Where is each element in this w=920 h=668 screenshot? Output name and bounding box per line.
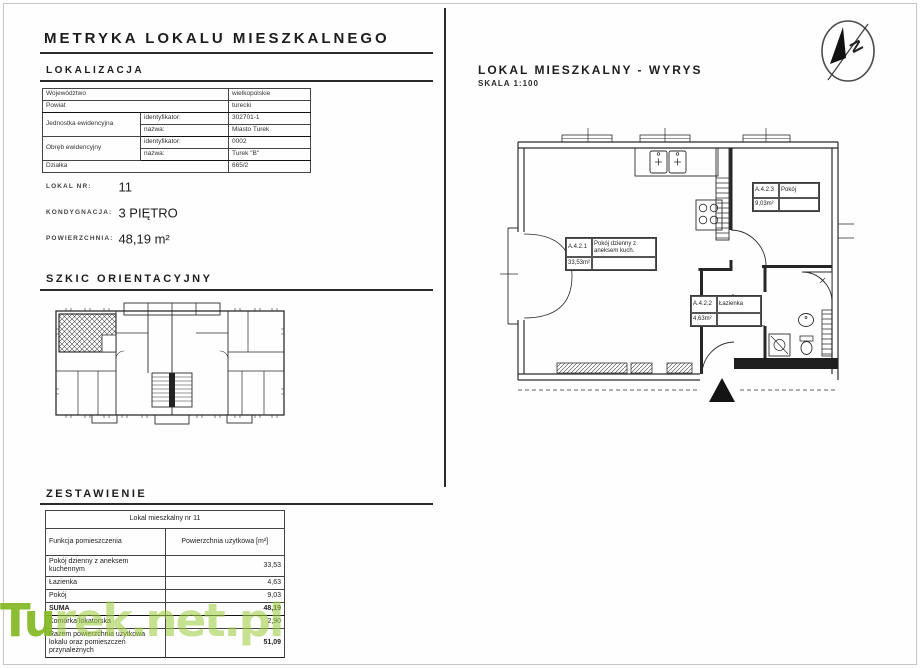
room-area: 4,63m²: [691, 313, 717, 326]
lokalizacja-rule: [40, 80, 433, 82]
table-row: Pokój dzienny z aneksem kuchennym 33,53: [46, 556, 285, 577]
wojewodztwo-value: wielkopolskie: [229, 89, 311, 101]
north-arrow-icon: N: [815, 14, 881, 86]
table-row: Lokal mieszkalny nr 11: [46, 511, 285, 529]
table-row: Obręb ewidencyjny identyfikator: 0002: [43, 137, 311, 149]
room-name: Pokój: [779, 183, 819, 198]
room-id: A.4.2.2: [691, 296, 717, 313]
table-row: Województwo wielkopolskie: [43, 89, 311, 101]
room-label-empty-cell: [779, 198, 819, 211]
jednostka-nazwa: Miasto Turek: [229, 125, 311, 137]
panel-divider: [444, 8, 446, 487]
watermark-bold: Tu: [0, 594, 54, 647]
powierzchnia-row: POWIERZCHNIA: 48,19 m²: [46, 230, 170, 248]
identyfikator-label: identyfikator:: [141, 137, 229, 149]
table-row: Jednostka ewidencyjna identyfikator: 302…: [43, 113, 311, 125]
room-id: A.4.2.1: [566, 238, 592, 257]
room-label-living: A.4.2.1 Pokój dzienny z aneksem kuch. 33…: [565, 237, 657, 271]
nazwa-label: nazwa:: [141, 149, 229, 161]
jednostka-id: 302701-1: [229, 113, 311, 125]
col-funkcja: Funkcja pomieszczenia: [46, 529, 166, 556]
summary-table-title: Lokal mieszkalny nr 11: [46, 511, 285, 529]
table-row: Działka 665/2: [43, 161, 311, 173]
lokal-nr-value: 11: [118, 179, 132, 194]
building-sketch: [52, 299, 292, 433]
table-row: Powiat turecki: [43, 101, 311, 113]
room-area: 9,03m²: [753, 198, 779, 211]
room-label-empty-cell: [717, 313, 761, 326]
row-value: 4,63: [165, 577, 285, 590]
kondygnacja-label: KONDYGNACJA:: [46, 209, 114, 216]
jednostka-label: Jednostka ewidencyjna: [43, 113, 141, 137]
watermark: Turek.net.pl: [0, 594, 282, 647]
room-label-empty-cell: [592, 257, 656, 270]
section-szkic-heading: SZKIC ORIENTACYJNY: [46, 273, 212, 285]
powiat-label: Powiat: [43, 101, 229, 113]
lokal-nr-label: LOKAL NR:: [46, 183, 114, 190]
obreb-label: Obręb ewidencyjny: [43, 137, 141, 161]
location-table: Województwo wielkopolskie Powiat turecki…: [42, 88, 311, 173]
title-rule: [40, 52, 433, 54]
identyfikator-label: identyfikator:: [141, 113, 229, 125]
room-label-bathroom: A.4.2.2 Łazienka 4,63m²: [690, 295, 762, 327]
entry-arrow: [709, 378, 735, 402]
row-value: 33,53: [165, 556, 285, 577]
page-title: METRYKA LOKALU MIESZKALNEGO: [44, 30, 390, 47]
lokal-nr-row: LOKAL NR: 11: [46, 178, 132, 196]
obreb-nazwa: Turek "B": [229, 149, 311, 161]
room-id: A.4.2.3: [753, 183, 779, 198]
section-zestawienie-heading: ZESTAWIENIE: [46, 488, 147, 500]
watermark-rest: rek.net.pl: [54, 594, 283, 647]
powierzchnia-label: POWIERZCHNIA:: [46, 235, 114, 242]
row-label: Pokój dzienny z aneksem kuchennym: [46, 556, 166, 577]
room-label-bedroom: A.4.2.3 Pokój 9,03m²: [752, 182, 820, 212]
wyrys-scale: SKALA 1:100: [478, 79, 539, 88]
powiat-value: turecki: [229, 101, 311, 113]
section-lokalizacja-heading: LOKALIZACJA: [46, 65, 144, 76]
wojewodztwo-label: Województwo: [43, 89, 229, 101]
obreb-id: 0002: [229, 137, 311, 149]
dzialka-value: 665/2: [229, 161, 311, 173]
document-page: METRYKA LOKALU MIESZKALNEGO LOKALIZACJA …: [0, 0, 920, 668]
floor-plan: [500, 128, 856, 408]
room-area: 33,53m²: [566, 257, 592, 270]
room-name: Pokój dzienny z aneksem kuch.: [592, 238, 656, 257]
dzialka-label: Działka: [43, 161, 229, 173]
zestawienie-rule: [40, 503, 433, 505]
szkic-rule: [40, 289, 433, 291]
nazwa-label: nazwa:: [141, 125, 229, 137]
col-powierzchnia: Powierzchnia użytkowa [m²]: [165, 529, 285, 556]
section-wyrys-heading: LOKAL MIESZKALNY - WYRYS: [478, 63, 702, 77]
kondygnacja-value: 3 PIĘTRO: [118, 205, 177, 220]
powierzchnia-value: 48,19 m²: [118, 231, 169, 246]
room-name: Łazienka: [717, 296, 761, 313]
row-label: Łazienka: [46, 577, 166, 590]
table-row: Funkcja pomieszczenia Powierzchnia użytk…: [46, 529, 285, 556]
table-row: Łazienka 4,63: [46, 577, 285, 590]
north-letter: N: [845, 38, 865, 56]
kondygnacja-row: KONDYGNACJA: 3 PIĘTRO: [46, 204, 178, 222]
